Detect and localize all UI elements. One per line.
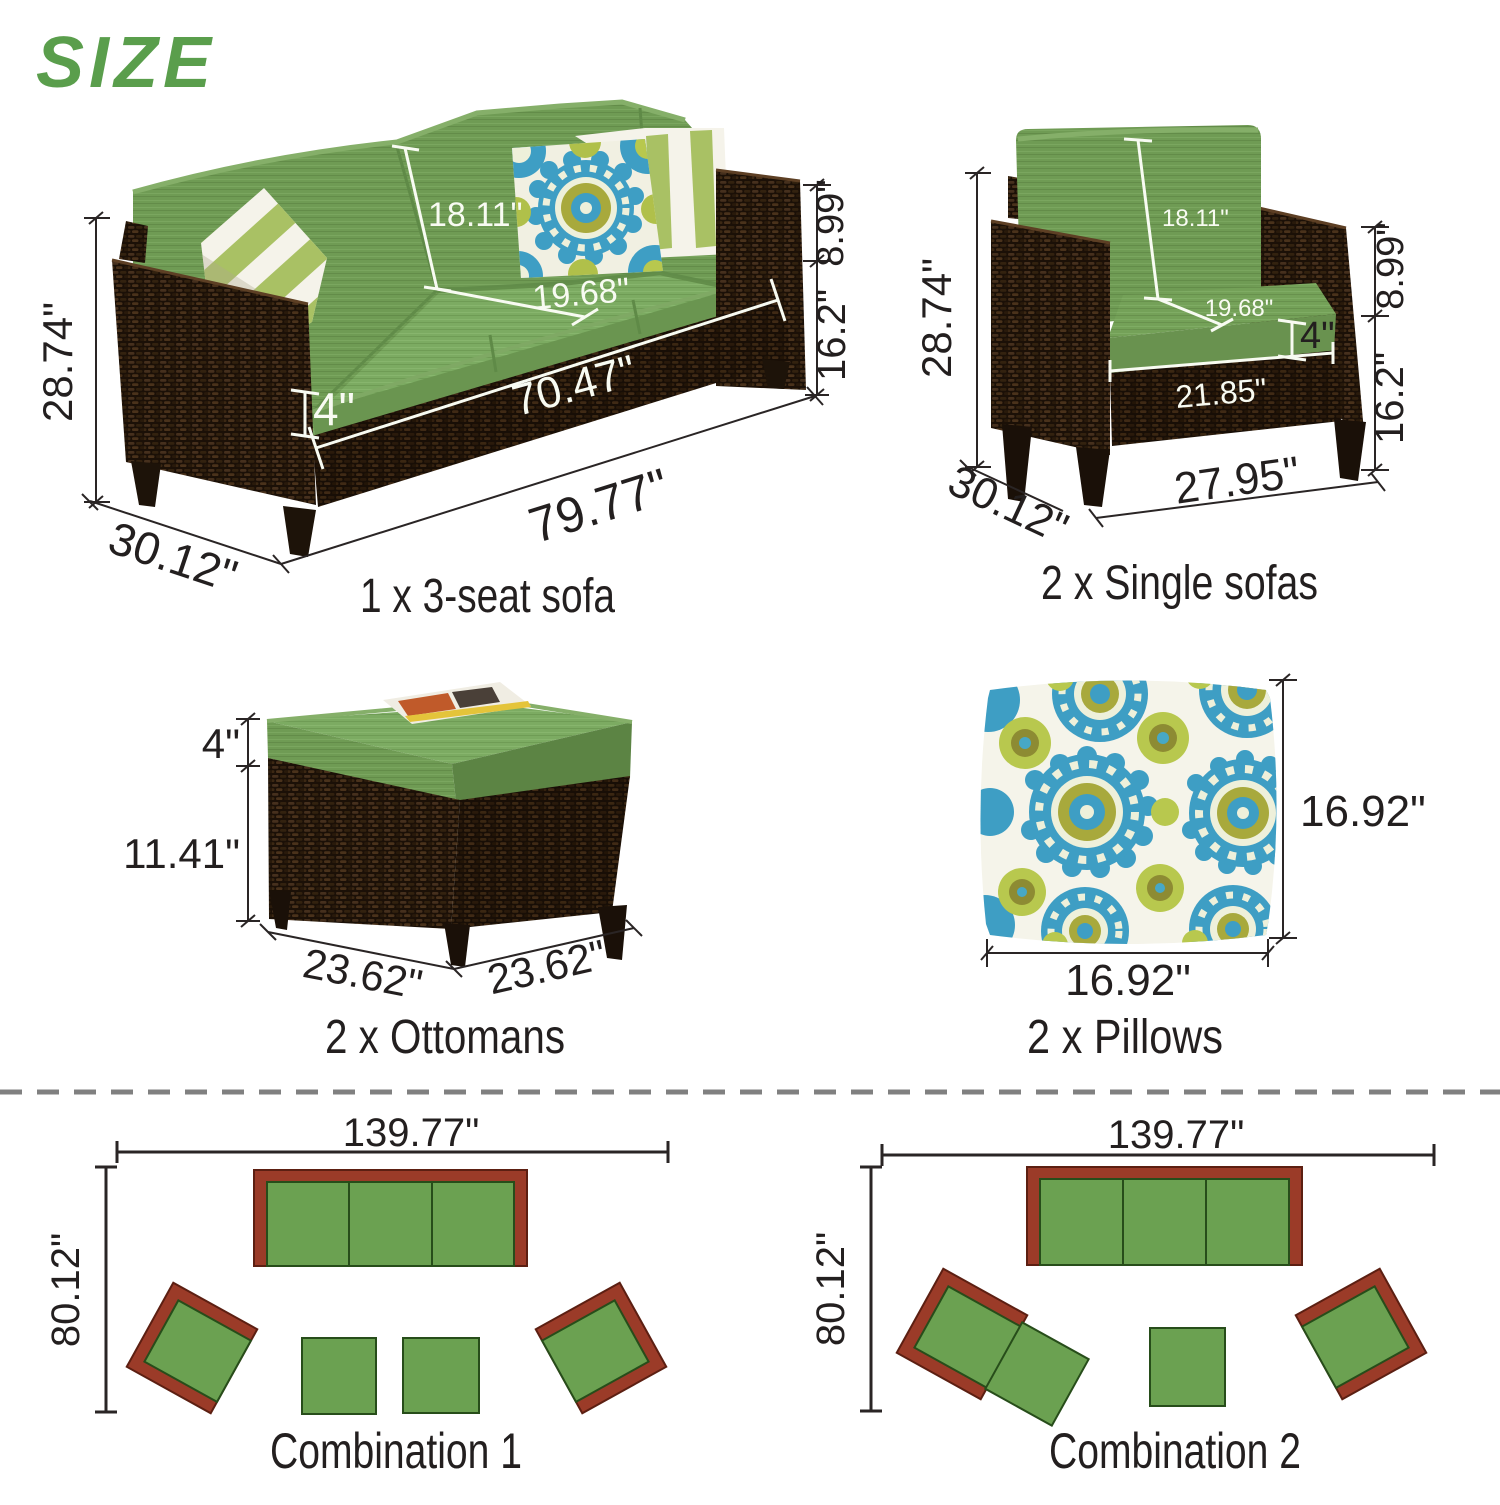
svg-text:16.2": 16.2"	[810, 289, 854, 381]
svg-text:4": 4"	[313, 383, 355, 435]
svg-text:Combination 1: Combination 1	[270, 1423, 522, 1479]
svg-text:139.77": 139.77"	[1108, 1113, 1245, 1157]
svg-text:16.92": 16.92"	[1300, 787, 1426, 836]
svg-text:28.74": 28.74"	[34, 302, 81, 422]
svg-text:2 x Ottomans: 2 x Ottomans	[325, 1011, 565, 1064]
svg-text:1 x 3-seat sofa: 1 x 3-seat sofa	[360, 570, 615, 623]
svg-text:18.11": 18.11"	[1162, 205, 1229, 232]
svg-text:16.92": 16.92"	[1065, 956, 1191, 1005]
svg-text:11.41": 11.41"	[123, 830, 240, 877]
svg-text:28.74": 28.74"	[913, 258, 960, 378]
svg-text:SIZE: SIZE	[36, 23, 216, 103]
svg-text:19.68": 19.68"	[1205, 295, 1274, 322]
svg-text:2 x Pillows: 2 x Pillows	[1027, 1011, 1223, 1064]
svg-text:8.99": 8.99"	[810, 179, 852, 266]
svg-text:139.77": 139.77"	[343, 1111, 480, 1155]
svg-text:18.11": 18.11"	[428, 196, 523, 234]
svg-text:4": 4"	[202, 720, 240, 767]
svg-text:8.99": 8.99"	[1370, 222, 1412, 309]
svg-text:80.12": 80.12"	[44, 1233, 88, 1347]
svg-text:2 x Single sofas: 2 x Single sofas	[1041, 557, 1318, 610]
svg-text:16.2": 16.2"	[1368, 352, 1412, 444]
svg-text:80.12": 80.12"	[809, 1232, 853, 1346]
svg-text:Combination 2: Combination 2	[1049, 1423, 1301, 1479]
svg-text:4": 4"	[1300, 315, 1335, 357]
